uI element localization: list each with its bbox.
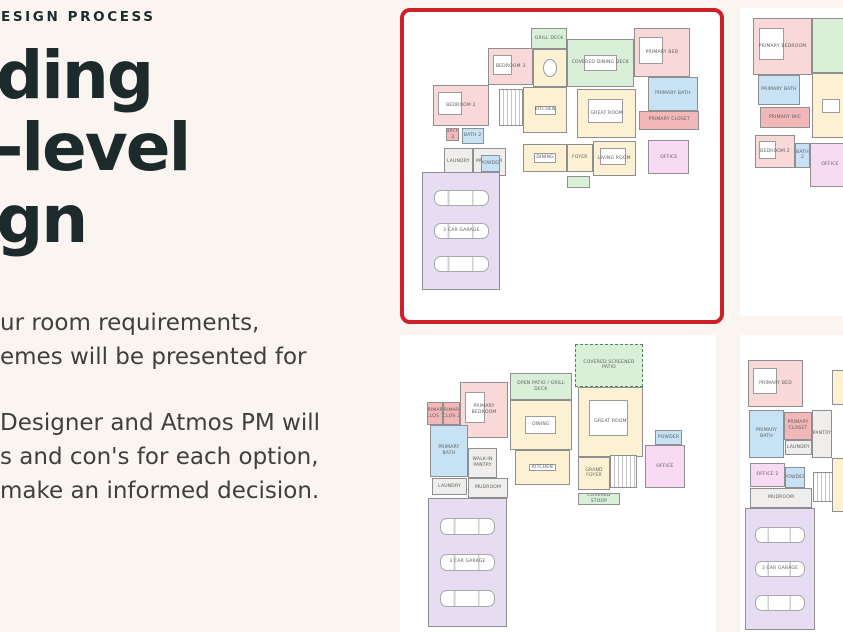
room-grand-foyer: GRAND FOYER <box>578 457 610 490</box>
eyebrow-label: ESIGN PROCESS <box>1 9 156 25</box>
room-primary-closet: PRIMARY CLOSET <box>784 412 812 440</box>
floorplan-canvas-2: PRIMARY BEDROOMPRIMARY BATHPRIMARY WICBE… <box>740 8 843 316</box>
room-label: OFFICE <box>646 446 684 487</box>
room-foyer: FOYER <box>567 144 593 173</box>
hero-section: ESIGN PROCESS ding -level gn ur room req… <box>0 0 400 632</box>
room-area <box>812 73 843 138</box>
room-label: PANTRY <box>813 411 831 457</box>
intro-paragraph: ur room requirements, emes will be prese… <box>0 306 306 374</box>
room-covered-screened-patio: COVERED SCREENED PATIO <box>575 344 643 387</box>
room-label: PRIMARY BEDROOM <box>754 19 811 74</box>
room-primary-bedroom: PRIMARY BEDROOM <box>753 18 812 75</box>
room-label: PRIMARY WIC <box>761 108 809 127</box>
room-label: PRIMARY BATH <box>759 76 799 104</box>
room-stairs <box>610 455 637 488</box>
round-furniture-icon <box>543 59 557 77</box>
floorplan-option-1-selected[interactable]: GRILL DECKCOVERED DINING DECKBEDROOM 3PR… <box>400 8 724 324</box>
room-label: GREAT ROOM <box>579 388 642 456</box>
room-bedroom-3: BEDROOM 3 <box>488 48 533 85</box>
room-label: OFFICE <box>649 141 688 173</box>
room-label: MUDROOM <box>751 489 811 507</box>
room-3-car-garage: 3 CAR GARAGE <box>745 508 815 630</box>
room-label: GRAND FOYER <box>579 458 609 489</box>
room-covered-stoop: COVERED STOOP <box>578 493 620 505</box>
room-label: 3 CAR GARAGE <box>746 509 814 629</box>
room-primary-bath: PRIMARY BATH <box>430 425 468 477</box>
room-label: DINING <box>524 145 566 172</box>
room-label: BATH 2 <box>463 129 483 142</box>
room-label: FOYER <box>568 145 592 172</box>
title-line-1: ding <box>0 40 189 112</box>
room-label: POWDER <box>786 468 804 487</box>
page: ESIGN PROCESS ding -level gn ur room req… <box>0 0 843 632</box>
room-great-room: GREAT ROOM <box>577 89 635 138</box>
floorplan-option-2[interactable]: PRIMARY BEDROOMPRIMARY BATHPRIMARY WICBE… <box>740 8 843 316</box>
room-label: KITCHEN <box>524 88 566 132</box>
room-label: COVERED SCREENED PATIO <box>576 345 642 386</box>
room-laundry: LAUNDRY <box>785 440 812 455</box>
room-label: OFFICE 2 <box>751 464 784 486</box>
room-mudroom: MUDROOM <box>468 478 508 498</box>
room-label: OPEN PATIO / GRILL DECK <box>511 374 571 399</box>
floorplan-canvas-1: GRILL DECKCOVERED DINING DECKBEDROOM 3PR… <box>404 12 720 320</box>
room-living-room: LIVING ROOM <box>593 141 636 176</box>
island-furniture-icon <box>822 99 840 113</box>
room-office: OFFICE <box>810 143 843 187</box>
room-office-2: OFFICE 2 <box>750 463 785 487</box>
room-label: POWDER <box>656 431 681 444</box>
room-powder: POWDER <box>785 467 805 488</box>
title-line-3: gn <box>0 184 189 256</box>
room-pantry: PANTRY <box>812 410 832 458</box>
room-label: COVERED STOOP <box>579 494 619 504</box>
room-primary-bath: PRIMARY BATH <box>648 77 697 111</box>
room-label: LIVING ROOM <box>594 142 635 175</box>
room-primary-bed: PRIMARY BED <box>748 360 803 407</box>
room-primary-bath: PRIMARY BATH <box>758 75 800 105</box>
room-laundry: LAUNDRY <box>432 478 467 495</box>
room-primary-wic: PRIMARY WIC <box>760 107 810 128</box>
room-primary-clos-1: PRIMARY CLOS 1 <box>427 402 443 425</box>
floorplan-canvas-4: PRIMARY BEDPRIMARY BATHPRIMARY CLOSETLAU… <box>740 335 843 632</box>
room-label: POWDER <box>482 156 499 171</box>
room-label: GREAT ROOM <box>578 90 634 137</box>
title-line-2: -level <box>0 112 189 184</box>
room-mudroom: MUDROOM <box>750 488 812 508</box>
room-label: PRIMARY BATH <box>750 411 783 457</box>
room-area <box>567 176 590 187</box>
paragraph2-line-3: make an informed decision. <box>0 474 320 508</box>
room-bedroom-2: BEDROOM 2 <box>755 135 795 168</box>
room-area <box>533 49 567 87</box>
room-dining: DINING <box>523 144 567 173</box>
room-powder: POWDER <box>655 430 682 445</box>
room-powder: POWDER <box>481 155 500 172</box>
room-kitchen: KITCHEN <box>515 450 570 485</box>
room-label: BEDROOM 2 <box>756 136 794 167</box>
room-area <box>832 370 843 405</box>
room-area <box>812 18 843 73</box>
room-label: 3 CAR GARAGE <box>429 499 506 626</box>
room-open-patio-grill-deck: OPEN PATIO / GRILL DECK <box>510 373 572 400</box>
room-office: OFFICE <box>648 140 689 174</box>
room-label: WALK-IN PANTRY <box>469 449 496 477</box>
floorplan-canvas-3: COVERED SCREENED PATIOOPEN PATIO / GRILL… <box>404 339 712 628</box>
room-label: OFFICE <box>811 144 843 186</box>
room-bath-2: BATH 2 <box>795 143 810 168</box>
room-label: PRIMARY BATH <box>649 78 696 110</box>
room-covered-dining-deck: COVERED DINING DECK <box>567 39 634 87</box>
room-label: KITCHEN <box>516 451 569 484</box>
floorplan-option-3[interactable]: COVERED SCREENED PATIOOPEN PATIO / GRILL… <box>400 335 716 632</box>
room-label: LAUNDRY <box>786 441 811 454</box>
room-label: PRIMARY CLOSET <box>785 413 811 439</box>
room-bath-3: BATH 3 <box>446 128 459 141</box>
page-title: ding -level gn <box>0 40 189 256</box>
room-walk-in-pantry: WALK-IN PANTRY <box>468 448 497 478</box>
room-label: GRILL DECK <box>532 29 566 48</box>
room-primary-bed: PRIMARY BED <box>634 28 691 76</box>
room-area <box>832 458 843 512</box>
room-bedroom-2: BEDROOM 2 <box>433 85 489 126</box>
room-great-room: GREAT ROOM <box>578 387 643 457</box>
room-label: BATH 3 <box>447 129 458 140</box>
paragraph1-line-1: ur room requirements, <box>0 306 306 340</box>
paragraph2-line-1: Designer and Atmos PM will <box>0 406 320 440</box>
room-3-car-garage: 3 CAR GARAGE <box>422 172 500 290</box>
room-label: LAUNDRY <box>433 479 466 494</box>
room-label: BATH 2 <box>796 144 809 167</box>
room-label: PRIMARY CLOS 1 <box>428 403 442 424</box>
room-label: COVERED DINING DECK <box>568 40 633 86</box>
room-label: PRIMARY BED <box>749 361 802 406</box>
detail-paragraph: Designer and Atmos PM will s and con's f… <box>0 406 320 508</box>
room-primary-clos-2: PRIMARY CLOS 2 <box>443 402 460 425</box>
room-label: PRIMARY CLOSET <box>640 112 698 129</box>
room-primary-closet: PRIMARY CLOSET <box>639 111 699 130</box>
paragraph1-line-2: emes will be presented for <box>0 340 306 374</box>
room-label: PRIMARY BATH <box>431 426 467 476</box>
room-bath-2: BATH 2 <box>462 128 484 143</box>
room-grill-deck: GRILL DECK <box>531 28 567 49</box>
room-primary-bath: PRIMARY BATH <box>749 410 784 458</box>
room-label: BEDROOM 2 <box>434 86 488 125</box>
room-label: 3 CAR GARAGE <box>423 173 499 289</box>
paragraph2-line-2: s and con's for each option, <box>0 440 320 474</box>
room-3-car-garage: 3 CAR GARAGE <box>428 498 507 627</box>
room-label: MUDROOM <box>469 479 507 497</box>
room-label: PRIMARY CLOS 2 <box>444 403 459 424</box>
room-label: PRIMARY BED <box>635 29 690 75</box>
room-dining: DINING <box>510 400 572 450</box>
room-label: DINING <box>511 401 571 449</box>
room-kitchen: KITCHEN <box>523 87 567 133</box>
room-office: OFFICE <box>645 445 685 488</box>
room-stairs <box>499 89 523 126</box>
floorplan-option-4[interactable]: PRIMARY BEDPRIMARY BATHPRIMARY CLOSETLAU… <box>740 335 843 632</box>
room-label: BEDROOM 3 <box>489 49 532 84</box>
